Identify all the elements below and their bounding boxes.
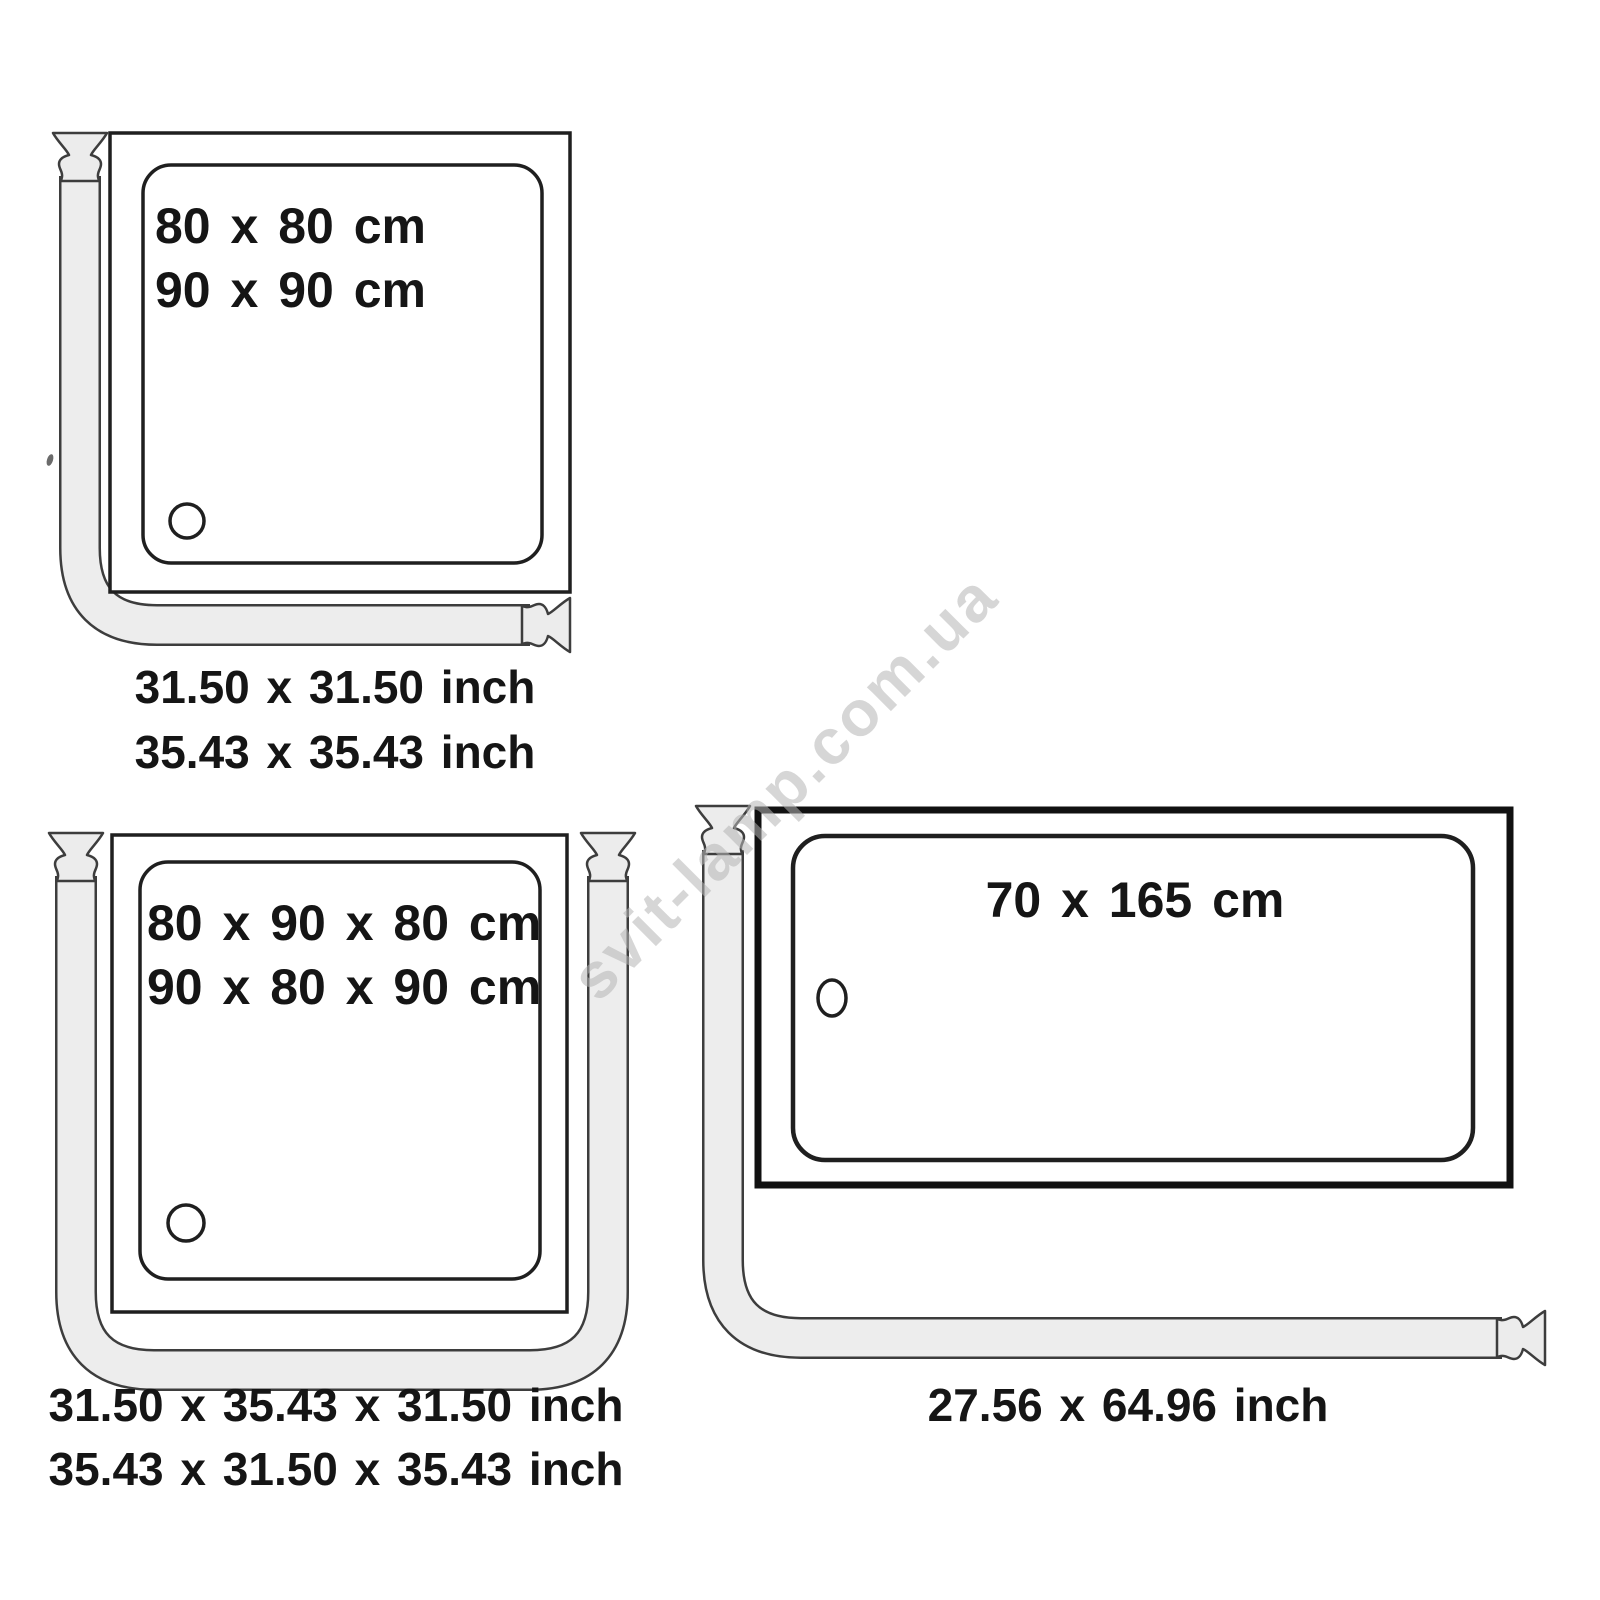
wall-mount-icon xyxy=(53,133,107,181)
tray-size-cm-line1: 80 x 80 cm xyxy=(155,198,426,254)
drain-icon xyxy=(170,504,204,538)
wall-mount-icon xyxy=(581,833,635,881)
u-tray-diagram: 80 x 90 x 80 cm 90 x 80 x 90 cm 31.50 x … xyxy=(49,833,635,1495)
diagram-canvas: 80 x 80 cm 90 x 90 cm 31.50 x 31.50 inch… xyxy=(0,0,1600,1600)
tray-size-cm-line1: 80 x 90 x 80 cm xyxy=(147,895,541,951)
tub-size-inch: 27.56 x 64.96 inch xyxy=(928,1379,1329,1431)
drain-icon xyxy=(818,980,846,1016)
tub-size-cm: 70 x 165 cm xyxy=(986,872,1285,928)
wall-mount-icon xyxy=(522,598,570,652)
tray-size-cm-line2: 90 x 80 x 90 cm xyxy=(147,959,541,1015)
drain-icon xyxy=(168,1205,204,1241)
product-diagram-page: 80 x 80 cm 90 x 90 cm 31.50 x 31.50 inch… xyxy=(0,0,1600,1600)
tray-size-inch-line2: 35.43 x 35.43 inch xyxy=(135,726,536,778)
tray-size-inch-line2: 35.43 x 31.50 x 35.43 inch xyxy=(49,1443,624,1495)
stray-mark xyxy=(45,453,54,466)
wall-mount-icon xyxy=(1497,1311,1545,1365)
bathtub-diagram: 70 x 165 cm 27.56 x 64.96 inch xyxy=(696,806,1545,1431)
tray-size-inch-line1: 31.50 x 31.50 inch xyxy=(135,661,536,713)
wall-mount-icon xyxy=(49,833,103,881)
tray-size-cm-line2: 90 x 90 cm xyxy=(155,262,426,318)
tray-size-inch-line1: 31.50 x 35.43 x 31.50 inch xyxy=(49,1379,624,1431)
square-tray-diagram: 80 x 80 cm 90 x 90 cm 31.50 x 31.50 inch… xyxy=(53,133,570,778)
